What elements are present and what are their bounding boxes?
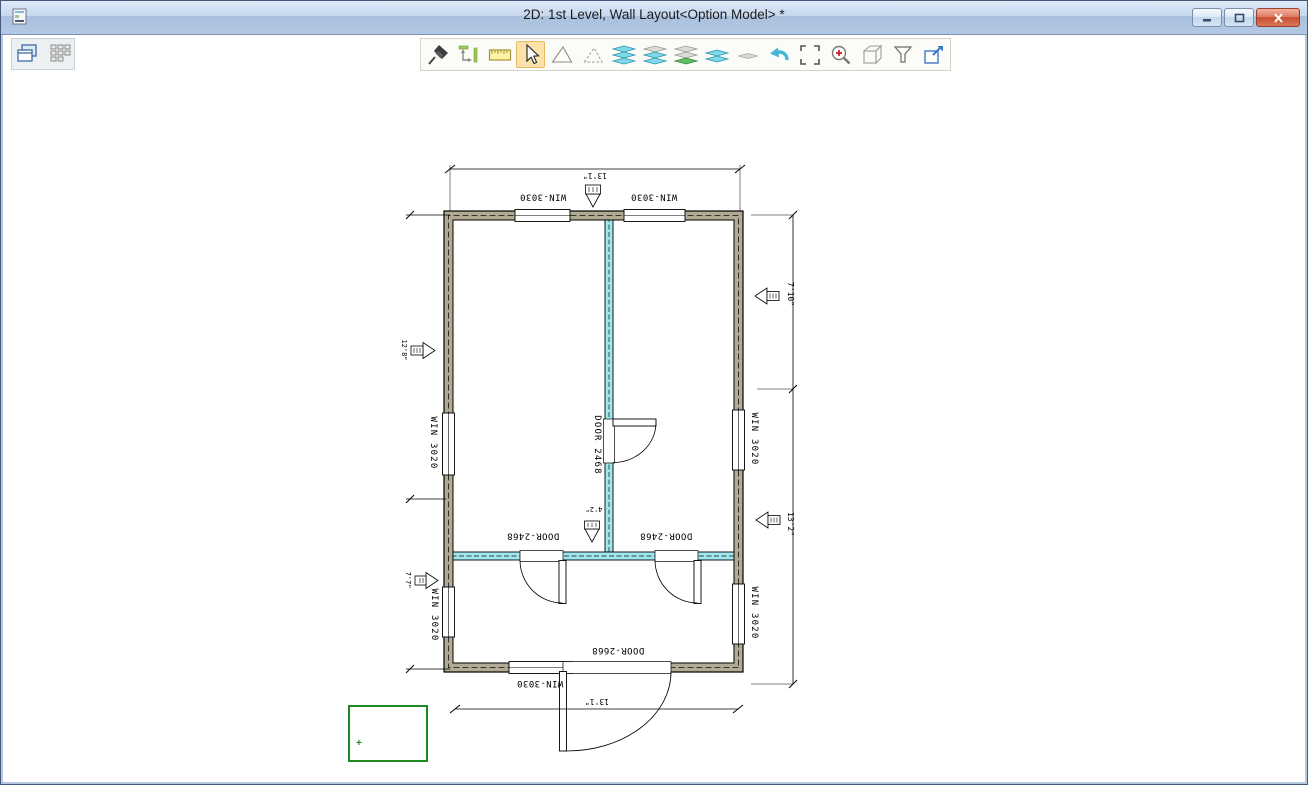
window-title: 2D: 1st Level, Wall Layout<Option Model>… [1,7,1307,22]
window-controls [1192,8,1300,27]
zoom-extents-icon [798,43,822,67]
label-hall-door-left: DOOR-2468 [507,531,559,541]
label-left-window-lower: WIN 3020 [429,589,439,642]
ruler-icon [488,43,512,67]
zoom-extents-button[interactable] [795,41,824,68]
box-3d-icon [860,43,884,67]
minimize-icon [1202,13,1212,22]
layers-two-button[interactable] [702,41,731,68]
filter-button[interactable] [888,41,917,68]
dim-overall-bottom: 13'1" [585,697,609,706]
export-view-icon [922,43,946,67]
select-cursor-icon [519,43,543,67]
minimize-button[interactable] [1192,8,1222,27]
window-right-upper[interactable] [443,413,455,475]
cascade-windows-button[interactable] [12,41,41,68]
elevation-marker-right-lower[interactable] [756,512,780,528]
undo-icon [767,43,791,67]
restore-icon [1234,13,1245,23]
layers-stack-alt-button[interactable] [640,41,669,68]
polygon-button[interactable] [547,41,576,68]
polygon-dashed-icon [581,43,605,67]
pin-icon [426,43,450,67]
window-bottom-left[interactable] [515,210,570,222]
label-hall-door-right: DOOR-2468 [640,531,692,541]
dim-overall-top: 13'1" [583,171,607,180]
drawing-canvas[interactable]: 13'1" 13'1" [3,73,1305,782]
elevation-marker-left-upper[interactable] [411,343,435,359]
label-right-window-lower: WIN 3020 [749,587,759,640]
layers-stack-button[interactable] [609,41,638,68]
window-left-lower[interactable] [733,584,745,644]
polygon-icon [550,43,574,67]
pin-button[interactable] [423,41,452,68]
window-right-lower[interactable] [443,587,455,637]
main-toolbar [420,38,951,71]
select-cursor-button[interactable] [516,41,545,68]
export-view-button[interactable] [919,41,948,68]
annotation-box[interactable]: + [348,705,428,762]
close-button[interactable] [1256,8,1300,27]
door-entry[interactable] [560,662,672,752]
layers-stack-alt-icon [642,43,668,67]
label-top-window-left: WIN-3030 [520,192,567,202]
dimension-overall-bottom: 13'1" [450,697,743,713]
layers-stack-icon [611,43,637,67]
filter-icon [891,43,915,67]
layer-flat-icon [735,43,761,67]
ruler-button[interactable] [485,41,514,68]
zoom-in-button[interactable] [826,41,855,68]
label-right-window-upper: WIN 3020 [749,413,759,466]
label-center-door: DOOR 2468 [592,415,602,475]
floor-plan: 13'1" 13'1" [401,157,821,723]
annotation-point: + [356,739,362,749]
label-entry-door: DOOR-2668 [592,645,644,655]
label-bottom-window: WIN-3030 [517,678,564,688]
app-window: 2D: 1st Level, Wall Layout<Option Model>… [0,0,1308,785]
label-top-window-right: WIN-3030 [631,192,678,202]
layers-green-button[interactable] [671,41,700,68]
window-layout-toolbar [11,38,75,70]
measure-button[interactable] [454,41,483,68]
elevation-marker-top-center[interactable] [586,185,601,207]
dim-right-lower: 13'2" [786,512,795,536]
window-bottom-right[interactable] [624,210,685,222]
label-left-window-upper: WIN 3020 [428,417,438,470]
close-icon [1273,13,1284,23]
undo-button[interactable] [764,41,793,68]
layer-flat-button[interactable] [733,41,762,68]
title-bar: 2D: 1st Level, Wall Layout<Option Model>… [1,1,1307,35]
interior-wall-vertical[interactable] [605,220,613,552]
restore-button[interactable] [1224,8,1254,27]
elevation-marker-right-upper[interactable] [755,288,779,304]
layers-two-icon [704,43,730,67]
dim-left-upper: 12'8" [400,339,408,360]
tile-windows-icon [48,42,72,66]
window-left-upper[interactable] [733,410,745,470]
cascade-windows-icon [15,42,39,66]
polygon-dashed-button[interactable] [578,41,607,68]
dim-interior: 4'2" [586,505,603,513]
tile-windows-button[interactable] [45,41,74,68]
dim-right-upper: 7'10" [786,282,795,306]
measure-icon [457,43,481,67]
zoom-in-icon [829,43,853,67]
client-area: 13'1" 13'1" [3,35,1305,782]
elevation-marker-left-lower[interactable] [415,573,438,589]
dim-left-lower: 7'7" [404,572,412,589]
layers-green-icon [673,43,699,67]
box-3d-button[interactable] [857,41,886,68]
